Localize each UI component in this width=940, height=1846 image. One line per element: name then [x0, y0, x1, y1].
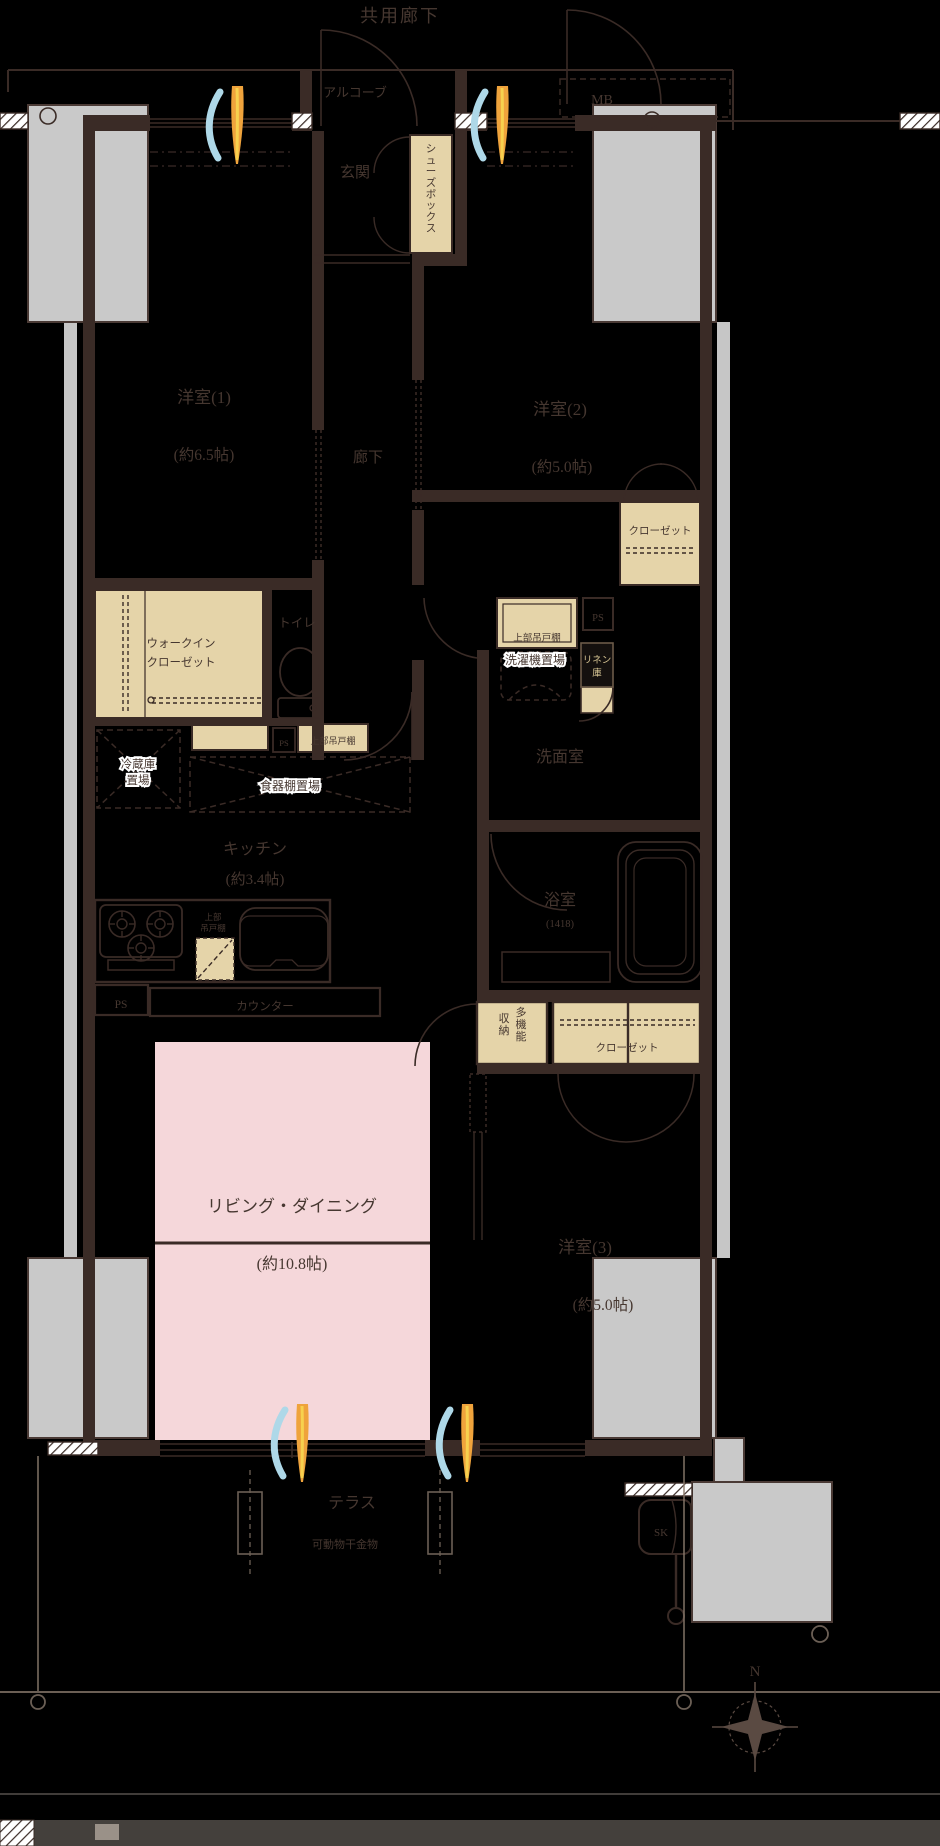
multi-storage-box	[477, 1002, 547, 1064]
sink	[240, 908, 328, 970]
kitchen-upper-cabinet-line1: 上部	[204, 912, 222, 922]
mb-door-arc	[567, 10, 661, 104]
closet2-box	[620, 502, 700, 585]
room1-size: (約6.5帖)	[174, 446, 235, 464]
bath-size: (1418)	[546, 919, 574, 930]
room2-name: 洋室(2)	[533, 400, 587, 419]
right-wall-strip	[717, 322, 730, 1258]
cupboard-label: 食器棚置場	[260, 778, 320, 793]
fridge-label-line1: 冷蔵庫	[121, 757, 156, 771]
laundry-hardware-label: 可動物干金物	[312, 1537, 378, 1551]
closet2-label: クローゼット	[629, 525, 692, 537]
floor-plan-page: 共用廊下 アルコーブ MB 玄関 シューズボックス 洋室(1) (約6.5帖) …	[0, 0, 940, 1846]
kitchen-upper-cabinet-line2: 吊戸棚	[200, 923, 226, 933]
linen-lower-box	[581, 687, 613, 713]
compass-north-label: N	[750, 1664, 761, 1680]
living-size: (約10.8帖)	[257, 1255, 328, 1273]
multi-storage-label-col2: 収納	[499, 1012, 510, 1037]
bath-name: 浴室	[544, 891, 576, 909]
laundry-upper-cabinet-label: 上部吊戸棚	[513, 632, 561, 644]
wic-label-line2: クローゼット	[147, 656, 216, 669]
kitchen-size: (約3.4帖)	[226, 871, 285, 888]
room3-name: 洋室(3)	[558, 1238, 612, 1257]
living-dining-area	[155, 1042, 430, 1440]
washroom-label: 洗面室	[536, 748, 584, 766]
washroom-door-arc	[424, 598, 477, 658]
terrace-label: テラス	[328, 1495, 376, 1512]
sk-label: SK	[654, 1527, 668, 1539]
sliding-partition-pocket	[470, 1074, 486, 1132]
mb-label: MB	[591, 93, 613, 108]
walk-in-closet-lower	[192, 722, 268, 750]
left-wall-strip	[64, 322, 77, 1258]
ps-kitchen-label: PS	[115, 999, 128, 1011]
compass-icon	[712, 1682, 798, 1772]
linen-label-line2: 庫	[592, 667, 602, 679]
multi-storage-label-col1: 多機能	[516, 1005, 527, 1043]
genkan-label: 玄関	[340, 164, 370, 181]
toilet-label: トイレ	[278, 616, 316, 630]
floor-plan: 共用廊下 アルコーブ MB 玄関 シューズボックス 洋室(1) (約6.5帖) …	[0, 0, 940, 1846]
living-name: リビング・ダイニング	[207, 1197, 377, 1216]
bathtub	[618, 842, 702, 982]
hall-label: 廊下	[353, 449, 383, 466]
counter-label: カウンター	[236, 1000, 294, 1013]
shoe-box-label: シューズボックス	[426, 144, 437, 234]
room2-size: (約5.0帖)	[532, 458, 593, 476]
toilet-upper-cabinet-label: 上部吊戸棚	[310, 735, 355, 746]
ps-toilet-label: PS	[279, 738, 289, 748]
wic-label-line1: ウォークイン	[147, 637, 216, 650]
kitchen-name: キッチン	[223, 841, 287, 858]
entrance-door-arc	[321, 30, 417, 126]
pillar-extension	[692, 1482, 832, 1622]
alcove-label: アルコーブ	[323, 85, 387, 100]
pillar-top-right	[593, 105, 716, 322]
walk-in-closet-area	[95, 590, 268, 718]
closet3-label: クローゼット	[596, 1042, 659, 1054]
bath-ledge	[502, 952, 610, 982]
ps-laundry-label: PS	[592, 613, 604, 624]
room1-name: 洋室(1)	[177, 388, 231, 407]
pillar-bottom-right	[593, 1258, 716, 1438]
fridge-label-line2: 置場	[127, 774, 150, 787]
stove	[100, 905, 182, 957]
room3-size: (約5.0帖)	[573, 1296, 634, 1314]
sk-sink	[639, 1500, 691, 1624]
pillar-stem	[714, 1438, 744, 1486]
common-corridor-label: 共用廊下	[360, 6, 440, 26]
linen-label-line1: リネン	[583, 655, 612, 666]
washer-label: 洗濯機置場	[505, 652, 565, 667]
closet3-box	[553, 1002, 700, 1064]
